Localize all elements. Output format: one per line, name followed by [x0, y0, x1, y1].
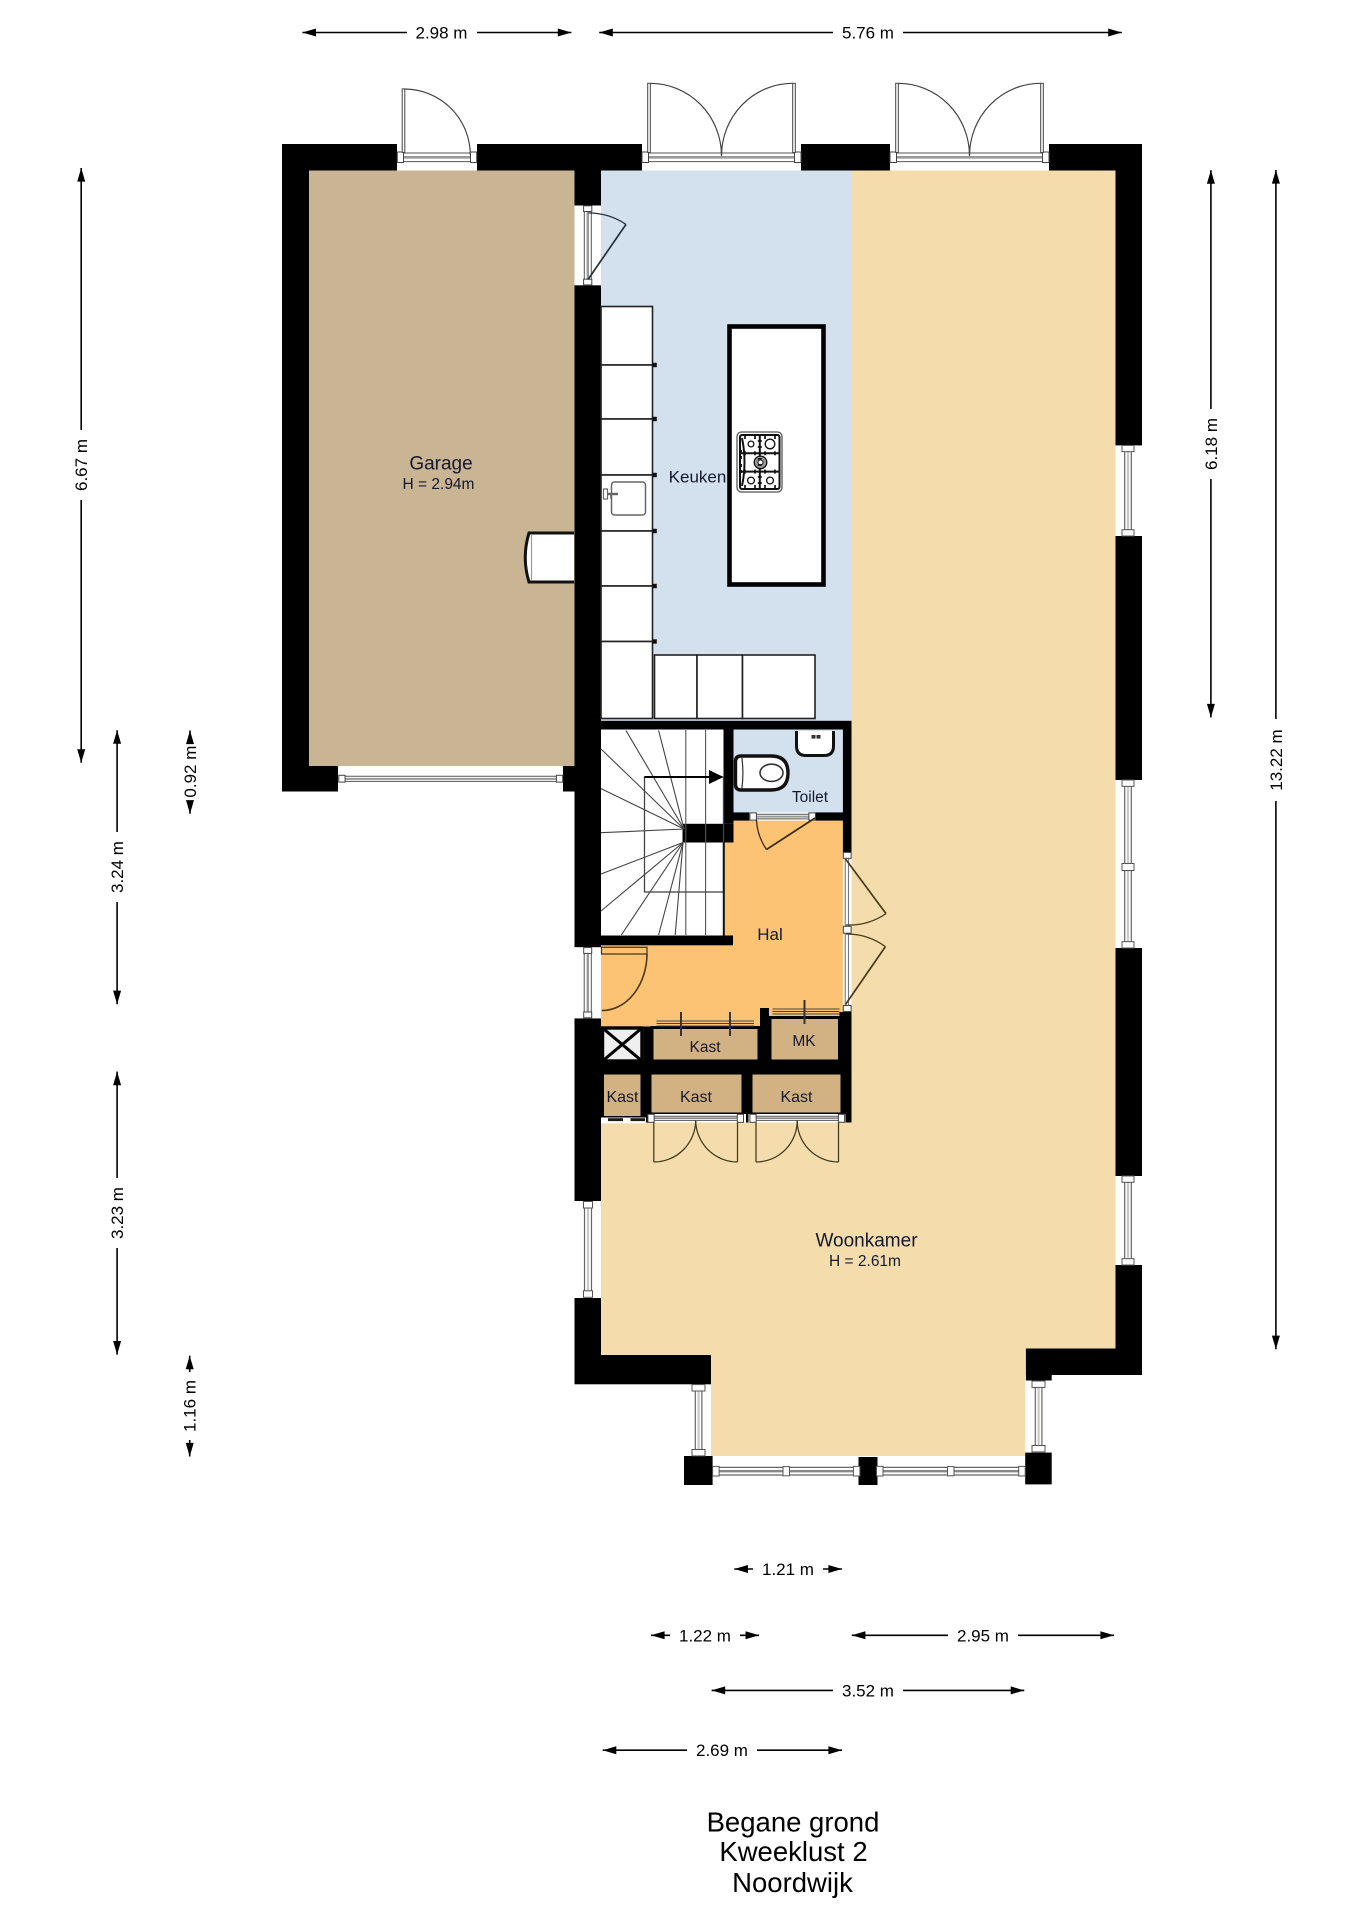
- svg-text:Kast: Kast: [780, 1089, 813, 1106]
- svg-text:2.98 m: 2.98 m: [416, 24, 468, 43]
- svg-text:H = 2.94m: H = 2.94m: [403, 476, 475, 493]
- svg-text:2.69 m: 2.69 m: [696, 1741, 748, 1760]
- svg-text:Hal: Hal: [757, 925, 783, 944]
- svg-text:1.21 m: 1.21 m: [762, 1560, 814, 1579]
- svg-text:Woonkamer: Woonkamer: [815, 1231, 918, 1252]
- svg-text:Kweeklust 2: Kweeklust 2: [719, 1836, 867, 1867]
- svg-text:Begane grond: Begane grond: [707, 1807, 880, 1838]
- svg-text:2.95 m: 2.95 m: [957, 1626, 1009, 1645]
- svg-text:13.22 m: 13.22 m: [1267, 729, 1286, 790]
- svg-text:Garage: Garage: [409, 454, 472, 475]
- svg-text:Toilet: Toilet: [792, 789, 829, 806]
- svg-text:Noordwijk: Noordwijk: [732, 1867, 853, 1898]
- svg-text:3.24 m: 3.24 m: [108, 841, 127, 893]
- svg-text:Keuken: Keuken: [669, 468, 727, 487]
- svg-text:6.67 m: 6.67 m: [72, 439, 91, 491]
- svg-text:Kast: Kast: [606, 1089, 639, 1106]
- svg-text:6.18 m: 6.18 m: [1202, 418, 1221, 470]
- svg-text:1.22 m: 1.22 m: [679, 1626, 731, 1645]
- svg-text:1.16 m: 1.16 m: [181, 1380, 200, 1432]
- svg-text:Kast: Kast: [680, 1089, 713, 1106]
- svg-text:Kast: Kast: [689, 1039, 721, 1056]
- svg-text:0.92 m: 0.92 m: [181, 746, 200, 798]
- svg-text:H = 2.61m: H = 2.61m: [829, 1253, 901, 1270]
- svg-text:3.52 m: 3.52 m: [842, 1681, 894, 1700]
- svg-text:3.23 m: 3.23 m: [108, 1187, 127, 1239]
- svg-text:MK: MK: [792, 1033, 816, 1050]
- svg-text:5.76 m: 5.76 m: [842, 24, 894, 43]
